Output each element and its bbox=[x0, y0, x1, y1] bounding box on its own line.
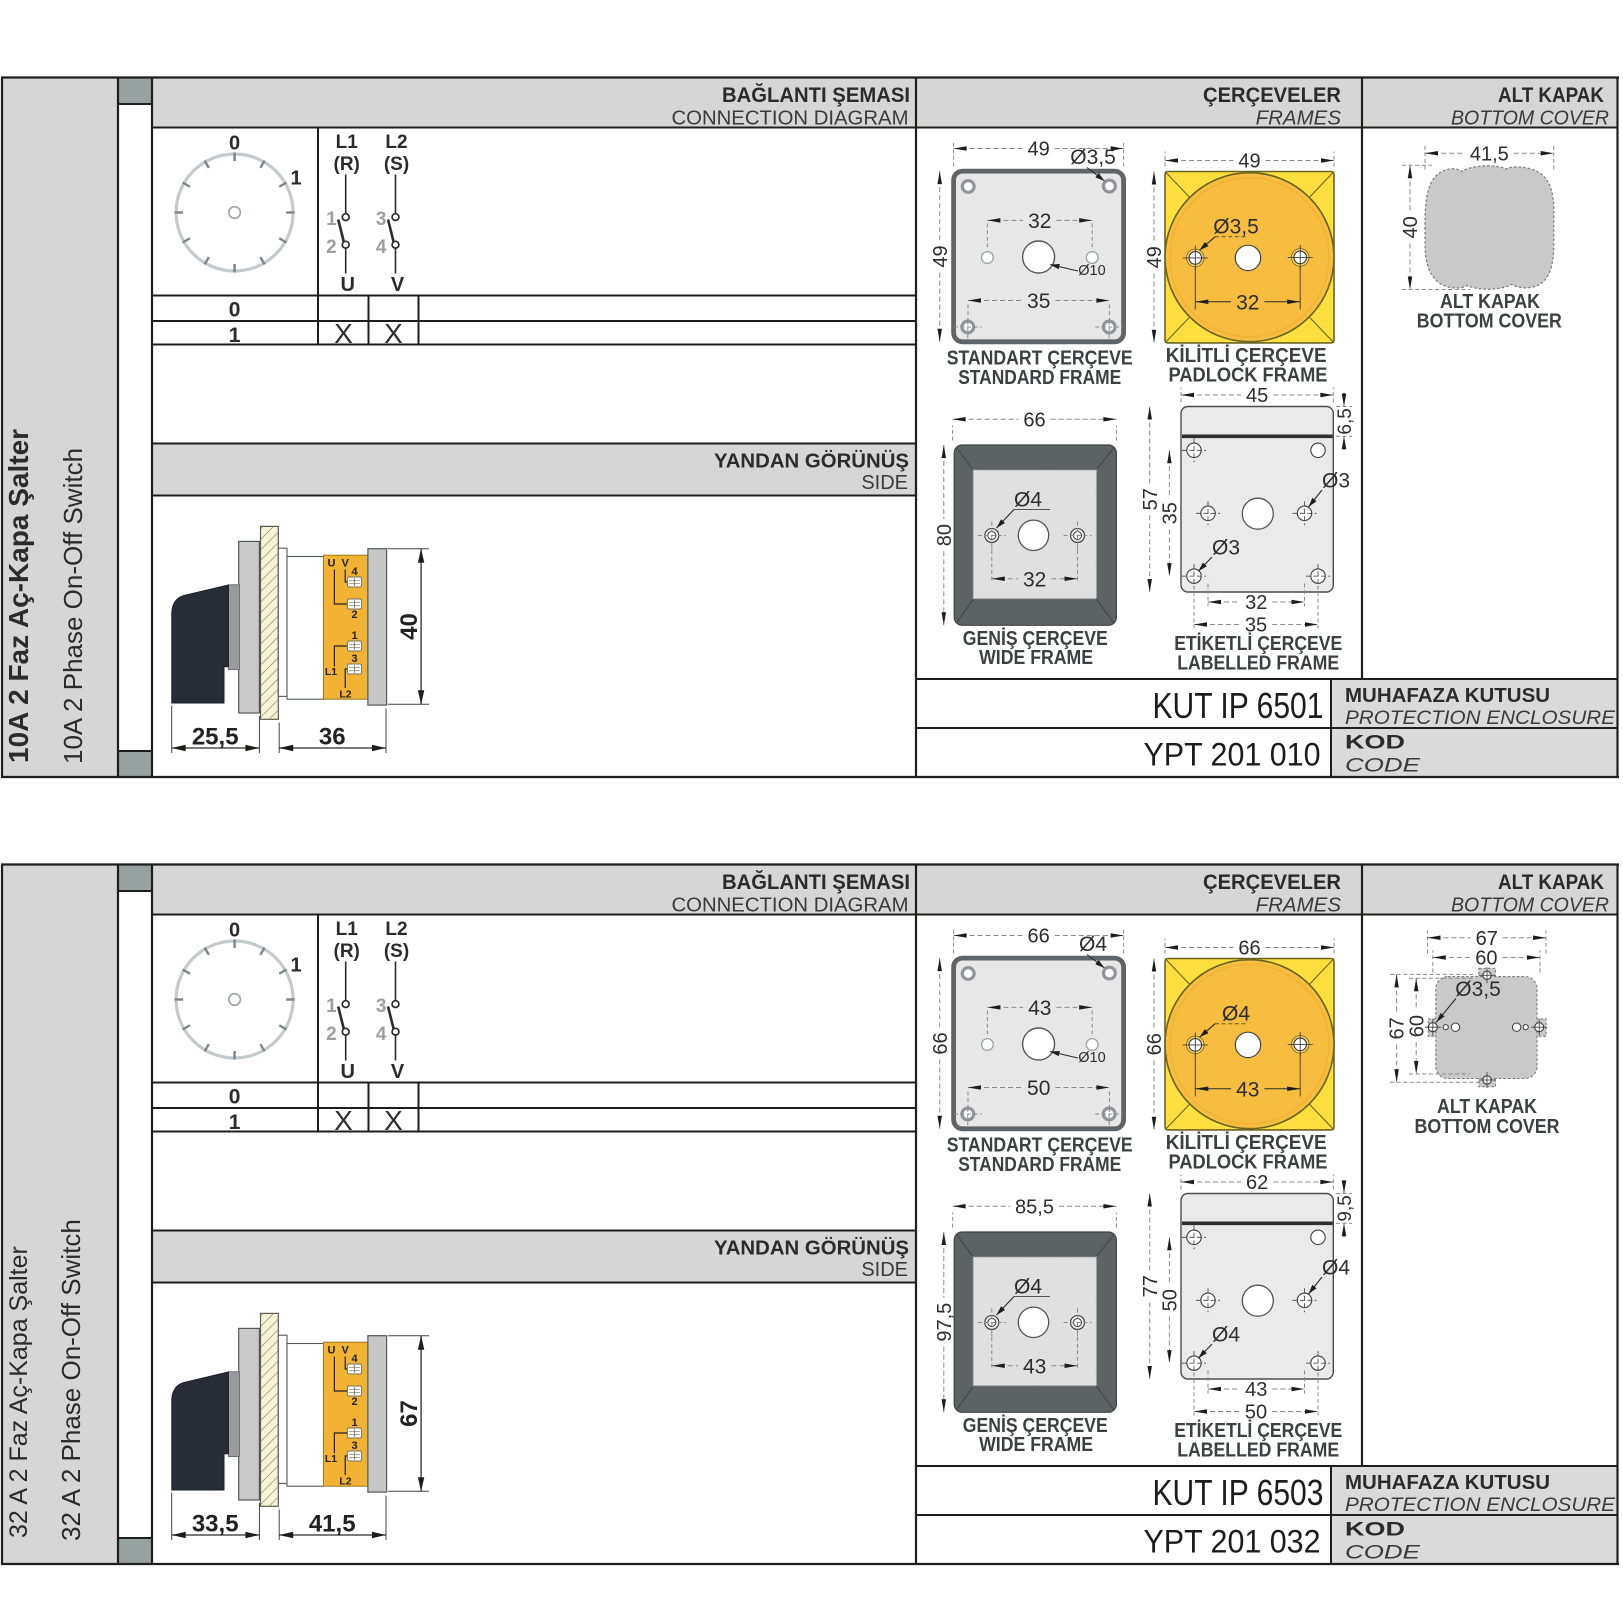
svg-text:4: 4 bbox=[351, 1353, 358, 1365]
svg-text:ÇERÇEVELER: ÇERÇEVELER bbox=[1203, 870, 1341, 894]
svg-text:33,5: 33,5 bbox=[192, 1511, 239, 1538]
svg-text:V: V bbox=[391, 274, 405, 296]
svg-text:66: 66 bbox=[1023, 409, 1045, 431]
svg-text:Ø4: Ø4 bbox=[1322, 1257, 1350, 1280]
svg-text:1: 1 bbox=[229, 1111, 241, 1134]
svg-text:2: 2 bbox=[326, 237, 337, 258]
svg-text:V: V bbox=[342, 1345, 350, 1357]
svg-text:1: 1 bbox=[351, 1417, 357, 1429]
svg-text:U: U bbox=[328, 1345, 336, 1357]
svg-text:CODE: CODE bbox=[1345, 756, 1420, 777]
svg-text:L1: L1 bbox=[325, 1453, 337, 1465]
svg-text:MUHAFAZA KUTUSU: MUHAFAZA KUTUSU bbox=[1345, 1472, 1550, 1494]
svg-text:Ø3,5: Ø3,5 bbox=[1213, 216, 1259, 239]
svg-text:32 A 2 Faz Aç-Kapa Şalter: 32 A 2 Faz Aç-Kapa Şalter bbox=[5, 1246, 33, 1538]
svg-text:LABELLED FRAME: LABELLED FRAME bbox=[1177, 653, 1339, 675]
svg-text:40: 40 bbox=[396, 613, 423, 640]
svg-text:80: 80 bbox=[934, 524, 956, 546]
svg-text:25,5: 25,5 bbox=[192, 724, 239, 751]
svg-text:32: 32 bbox=[1028, 210, 1051, 233]
svg-text:10A 2 Faz Aç-Kapa Şalter: 10A 2 Faz Aç-Kapa Şalter bbox=[3, 429, 34, 763]
svg-text:1: 1 bbox=[326, 996, 337, 1017]
svg-text:45: 45 bbox=[1246, 385, 1268, 407]
svg-text:YPT 201 032: YPT 201 032 bbox=[1144, 1524, 1321, 1560]
svg-text:WIDE FRAME: WIDE FRAME bbox=[979, 646, 1093, 669]
svg-text:2: 2 bbox=[351, 1396, 357, 1408]
svg-text:41,5: 41,5 bbox=[1470, 143, 1509, 165]
svg-text:1: 1 bbox=[290, 168, 301, 190]
svg-text:(S): (S) bbox=[384, 154, 409, 175]
svg-text:4: 4 bbox=[351, 566, 358, 578]
svg-text:X: X bbox=[334, 318, 353, 349]
svg-text:32: 32 bbox=[1245, 592, 1267, 614]
svg-text:36: 36 bbox=[319, 724, 346, 751]
svg-text:57: 57 bbox=[1140, 488, 1162, 510]
svg-text:1: 1 bbox=[229, 324, 241, 347]
svg-text:2: 2 bbox=[326, 1024, 337, 1045]
svg-text:50: 50 bbox=[1027, 1077, 1050, 1100]
svg-text:BAĞLANTI ŞEMASI: BAĞLANTI ŞEMASI bbox=[722, 869, 910, 894]
svg-text:49: 49 bbox=[930, 245, 952, 267]
svg-text:SIDE: SIDE bbox=[861, 472, 908, 494]
svg-text:62: 62 bbox=[1246, 1172, 1268, 1194]
svg-text:(R): (R) bbox=[334, 941, 360, 962]
svg-text:35: 35 bbox=[1160, 502, 1182, 524]
svg-text:V: V bbox=[391, 1061, 405, 1083]
svg-text:V: V bbox=[342, 558, 350, 570]
svg-text:L2: L2 bbox=[339, 689, 351, 701]
svg-text:66: 66 bbox=[1144, 1033, 1166, 1055]
svg-text:10A 2 Phase On-Off Switch: 10A 2 Phase On-Off Switch bbox=[58, 448, 88, 764]
svg-text:Ø3,5: Ø3,5 bbox=[1070, 146, 1116, 169]
svg-text:49: 49 bbox=[1027, 139, 1049, 161]
svg-text:MUHAFAZA KUTUSU: MUHAFAZA KUTUSU bbox=[1345, 685, 1550, 707]
svg-text:ALT KAPAK: ALT KAPAK bbox=[1498, 870, 1604, 894]
svg-text:Ø4: Ø4 bbox=[1212, 1324, 1240, 1347]
svg-text:CODE: CODE bbox=[1345, 1543, 1420, 1564]
svg-text:L2: L2 bbox=[385, 132, 407, 153]
svg-text:KOD: KOD bbox=[1345, 1519, 1405, 1541]
svg-text:66: 66 bbox=[930, 1032, 952, 1054]
svg-text:3: 3 bbox=[376, 996, 387, 1017]
svg-text:Ø4: Ø4 bbox=[1079, 933, 1107, 956]
svg-text:X: X bbox=[384, 1105, 403, 1136]
svg-text:0: 0 bbox=[229, 1086, 241, 1109]
svg-text:0: 0 bbox=[229, 299, 241, 322]
svg-text:YANDAN GÖRÜNÜŞ: YANDAN GÖRÜNÜŞ bbox=[714, 450, 909, 473]
svg-text:35: 35 bbox=[1027, 290, 1050, 313]
svg-text:60: 60 bbox=[1406, 1015, 1428, 1037]
svg-text:Ø3,5: Ø3,5 bbox=[1455, 978, 1501, 1001]
svg-text:43: 43 bbox=[1028, 997, 1051, 1020]
svg-text:CONNECTION DIAGRAM: CONNECTION DIAGRAM bbox=[672, 894, 909, 917]
svg-text:67: 67 bbox=[396, 1400, 423, 1427]
svg-text:BOTTOM COVER: BOTTOM COVER bbox=[1415, 1115, 1560, 1138]
svg-text:41,5: 41,5 bbox=[309, 1511, 356, 1538]
svg-text:2: 2 bbox=[351, 609, 357, 621]
svg-text:0: 0 bbox=[229, 920, 240, 942]
svg-text:L1: L1 bbox=[336, 919, 359, 940]
svg-text:BOTTOM COVER: BOTTOM COVER bbox=[1451, 107, 1609, 130]
svg-text:3: 3 bbox=[351, 1440, 357, 1452]
svg-text:CONNECTION DIAGRAM: CONNECTION DIAGRAM bbox=[672, 107, 909, 130]
svg-text:Ø10: Ø10 bbox=[1078, 263, 1105, 279]
svg-text:32: 32 bbox=[1236, 291, 1259, 314]
svg-text:43: 43 bbox=[1236, 1078, 1259, 1101]
svg-text:PADLOCK FRAME: PADLOCK FRAME bbox=[1169, 1151, 1328, 1174]
svg-text:ÇERÇEVELER: ÇERÇEVELER bbox=[1203, 83, 1341, 107]
svg-text:KUT IP 6503: KUT IP 6503 bbox=[1153, 1472, 1324, 1513]
svg-text:BOTTOM COVER: BOTTOM COVER bbox=[1451, 894, 1609, 917]
svg-text:Ø4: Ø4 bbox=[1014, 488, 1042, 511]
svg-text:PROTECTION ENCLOSURE: PROTECTION ENCLOSURE bbox=[1345, 1495, 1615, 1516]
svg-text:BOTTOM COVER: BOTTOM COVER bbox=[1417, 310, 1562, 333]
svg-text:X: X bbox=[384, 318, 403, 349]
svg-text:(R): (R) bbox=[334, 154, 360, 175]
svg-text:BAĞLANTI ŞEMASI: BAĞLANTI ŞEMASI bbox=[722, 82, 910, 107]
svg-text:LABELLED FRAME: LABELLED FRAME bbox=[1177, 1440, 1339, 1462]
svg-text:67: 67 bbox=[1476, 928, 1498, 950]
svg-text:STANDARD FRAME: STANDARD FRAME bbox=[958, 1153, 1121, 1176]
svg-text:43: 43 bbox=[1245, 1379, 1267, 1401]
svg-text:Ø3: Ø3 bbox=[1322, 470, 1350, 493]
svg-text:60: 60 bbox=[1475, 948, 1497, 970]
svg-text:L2: L2 bbox=[339, 1476, 351, 1488]
svg-text:40: 40 bbox=[1400, 216, 1422, 238]
svg-text:Ø3: Ø3 bbox=[1212, 537, 1240, 560]
svg-text:STANDARD FRAME: STANDARD FRAME bbox=[958, 366, 1121, 389]
svg-text:FRAMES: FRAMES bbox=[1256, 107, 1342, 130]
svg-text:9,5: 9,5 bbox=[1335, 1195, 1356, 1221]
svg-text:U: U bbox=[340, 274, 354, 296]
svg-text:32 A 2 Phase On-Off Switch: 32 A 2 Phase On-Off Switch bbox=[56, 1219, 86, 1541]
svg-text:L2: L2 bbox=[385, 919, 407, 940]
svg-text:SIDE: SIDE bbox=[861, 1259, 908, 1281]
svg-text:85,5: 85,5 bbox=[1015, 1196, 1054, 1218]
svg-text:0: 0 bbox=[229, 133, 240, 155]
svg-text:L1: L1 bbox=[336, 132, 359, 153]
svg-text:L1: L1 bbox=[325, 666, 337, 678]
svg-text:U: U bbox=[328, 558, 336, 570]
svg-text:50: 50 bbox=[1160, 1289, 1182, 1311]
svg-text:1: 1 bbox=[290, 955, 301, 977]
svg-text:YPT 201 010: YPT 201 010 bbox=[1144, 737, 1321, 773]
svg-text:1: 1 bbox=[326, 209, 337, 230]
svg-text:3: 3 bbox=[351, 653, 357, 665]
svg-text:49: 49 bbox=[1238, 151, 1260, 173]
svg-text:FRAMES: FRAMES bbox=[1256, 894, 1342, 917]
svg-text:Ø4: Ø4 bbox=[1014, 1275, 1042, 1298]
svg-text:PROTECTION ENCLOSURE: PROTECTION ENCLOSURE bbox=[1345, 708, 1615, 729]
svg-text:KUT IP 6501: KUT IP 6501 bbox=[1153, 685, 1324, 726]
svg-text:YANDAN GÖRÜNÜŞ: YANDAN GÖRÜNÜŞ bbox=[714, 1237, 909, 1260]
svg-text:X: X bbox=[334, 1105, 353, 1136]
svg-text:77: 77 bbox=[1140, 1275, 1162, 1297]
svg-text:ALT KAPAK: ALT KAPAK bbox=[1498, 83, 1604, 107]
svg-text:3: 3 bbox=[376, 209, 387, 230]
svg-text:66: 66 bbox=[1238, 938, 1260, 960]
svg-text:Ø10: Ø10 bbox=[1078, 1050, 1105, 1066]
svg-text:6,5: 6,5 bbox=[1335, 408, 1356, 434]
svg-text:Ø4: Ø4 bbox=[1222, 1003, 1250, 1026]
svg-text:32: 32 bbox=[1023, 568, 1046, 591]
svg-text:97,5: 97,5 bbox=[934, 1303, 956, 1342]
svg-text:KOD: KOD bbox=[1345, 732, 1405, 754]
svg-text:66: 66 bbox=[1027, 926, 1049, 948]
svg-text:(S): (S) bbox=[384, 941, 409, 962]
svg-text:4: 4 bbox=[376, 237, 387, 258]
svg-text:4: 4 bbox=[376, 1024, 387, 1045]
svg-text:WIDE FRAME: WIDE FRAME bbox=[979, 1433, 1093, 1456]
svg-text:PADLOCK FRAME: PADLOCK FRAME bbox=[1169, 364, 1328, 387]
svg-text:1: 1 bbox=[351, 630, 357, 642]
svg-text:43: 43 bbox=[1023, 1355, 1046, 1378]
svg-text:U: U bbox=[340, 1061, 354, 1083]
svg-text:49: 49 bbox=[1144, 246, 1166, 268]
